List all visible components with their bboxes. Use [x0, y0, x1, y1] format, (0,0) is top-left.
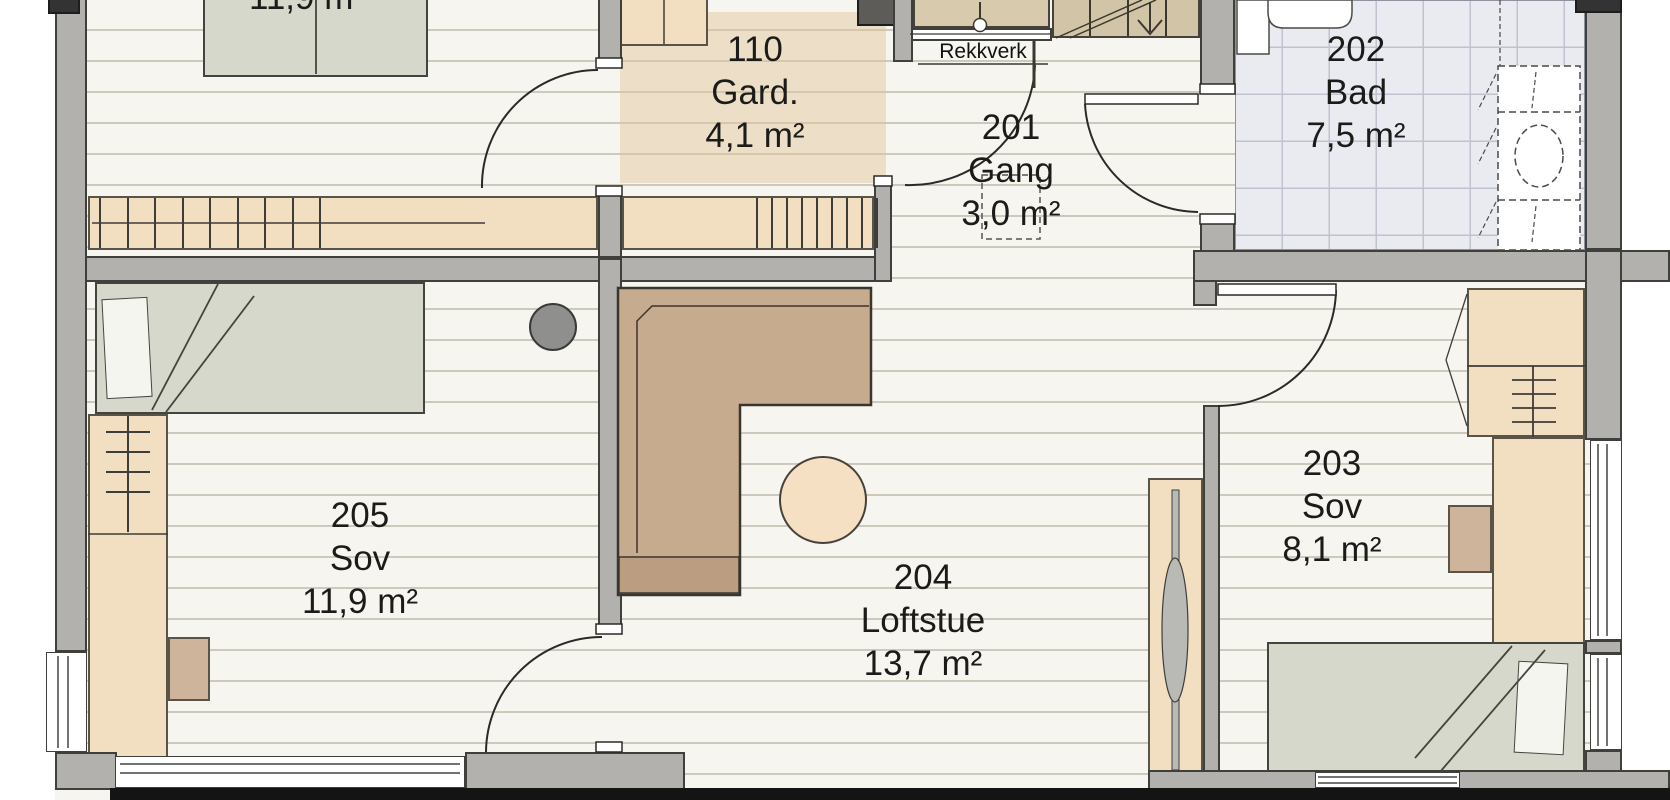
room-name: Sov: [302, 537, 418, 580]
chair-203: [1448, 505, 1492, 573]
wall-gang-jamb: [874, 183, 892, 282]
floorplan-canvas: 11,9 m² 110 Gard. 4,1 m² 201 Gang 3,0 m²…: [0, 0, 1670, 800]
room-number: 202: [1306, 28, 1405, 71]
wardrobe-strip-left: [88, 196, 598, 250]
room-area: 7,5 m²: [1306, 114, 1405, 157]
window-right-wall-upper: [1590, 440, 1622, 640]
room-area: 13,7 m²: [861, 642, 986, 685]
room-label-201-gang: 201 Gang 3,0 m²: [961, 106, 1060, 235]
room-label-204-loftstue: 204 Loftstue 13,7 m²: [861, 556, 986, 685]
room-number: 205: [302, 494, 418, 537]
wall-right-gap: [1585, 640, 1622, 654]
pillow-203: [1514, 661, 1569, 755]
room-number: 204: [861, 556, 986, 599]
pillow-205: [101, 297, 152, 399]
room-area: 11,9 m²: [302, 580, 418, 623]
room-area: 4,1 m²: [705, 114, 804, 157]
window-right-wall-lower: [1590, 654, 1622, 750]
wall-partition-203: [1203, 405, 1220, 780]
room-name: Gard.: [705, 71, 804, 114]
window-bottom-left: [115, 756, 465, 788]
window-top-left-cropped: [48, 0, 80, 14]
wall-center-top-a: [598, 0, 622, 62]
drawing-bottom-border: [110, 788, 1670, 800]
room-name: Sov: [1282, 485, 1381, 528]
room-label-205-sov: 205 Sov 11,9 m²: [302, 494, 418, 623]
wall-left-outer-top: [55, 0, 87, 652]
room-label-110-gard: 110 Gard. 4,1 m²: [705, 28, 804, 157]
sliding-door-cabinet: [1148, 478, 1203, 780]
window-bottom-right: [1315, 772, 1460, 788]
room-area: 3,0 m²: [961, 192, 1060, 235]
wall-right-mid: [1585, 250, 1622, 440]
stair-flight: [1052, 0, 1200, 38]
wall-stair-jamb: [893, 0, 913, 62]
railing-label: Rekkverk: [939, 41, 1027, 63]
wall-bath-left-top: [1200, 0, 1235, 94]
garderobe-cabinet: [620, 0, 708, 46]
wall-bottom-left-a: [55, 752, 117, 790]
room-label-topleft-partial: 11,9 m²: [249, 0, 365, 19]
room-name: Loftstue: [861, 599, 986, 642]
desk-203: [1492, 437, 1585, 647]
room-number: 201: [961, 106, 1060, 149]
window-top-right-cropped: [1575, 0, 1622, 13]
wardrobe-203: [1467, 288, 1585, 437]
window-left-wall: [46, 652, 87, 752]
wall-right-bath: [1585, 0, 1622, 250]
wardrobe-strip-garderobe: [622, 196, 874, 250]
room-area: 8,1 m²: [1282, 528, 1381, 571]
chair-205: [168, 637, 210, 701]
room-number: 203: [1282, 442, 1381, 485]
room-area: 11,9 m²: [249, 0, 365, 17]
room-name: Bad: [1306, 71, 1405, 114]
room-label-203-sov: 203 Sov 8,1 m²: [1282, 442, 1381, 571]
wall-203-top-stub: [1193, 280, 1217, 306]
room-number: 110: [705, 28, 804, 71]
bathroom-tile-floor: [1235, 0, 1585, 250]
wall-bottom-left-b: [465, 752, 685, 790]
room-name: Gang: [961, 149, 1060, 192]
outside-right: [1622, 0, 1670, 800]
wall-205-204: [598, 258, 622, 634]
stair-landing: [913, 0, 1050, 28]
wall-center-top-b: [598, 188, 622, 260]
wall-horizontal-main: [85, 256, 891, 282]
wall-bath-left-jamb: [1200, 214, 1235, 254]
dresser-desk-205: [88, 414, 168, 774]
room-label-202-bad: 202 Bad 7,5 m²: [1306, 28, 1405, 157]
